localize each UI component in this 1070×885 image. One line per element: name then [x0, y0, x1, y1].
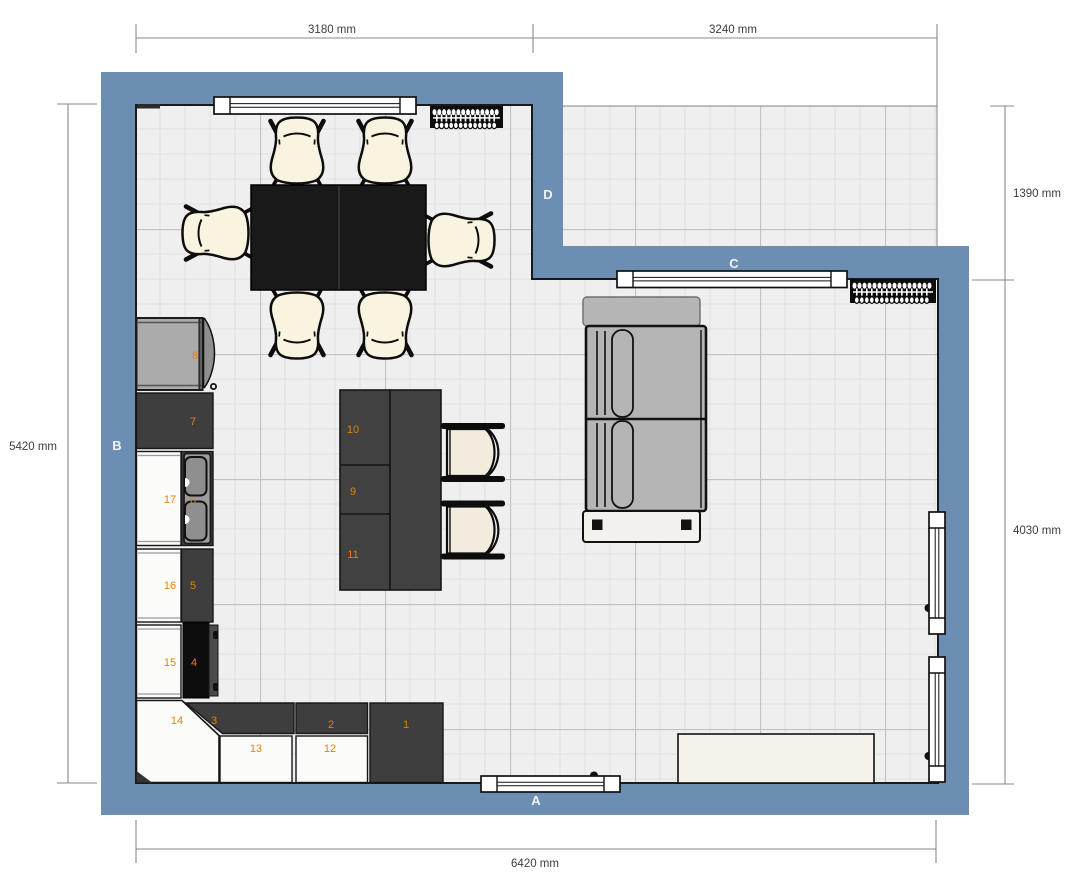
svg-text:11: 11	[347, 549, 358, 561]
svg-text:3180 mm: 3180 mm	[308, 24, 356, 36]
svg-text:7: 7	[190, 416, 196, 428]
svg-text:5: 5	[190, 580, 196, 592]
svg-text:15: 15	[164, 657, 176, 669]
svg-text:16: 16	[164, 580, 176, 592]
svg-text:3: 3	[211, 715, 217, 727]
svg-text:17: 17	[164, 494, 176, 506]
svg-text:5420 mm: 5420 mm	[9, 441, 57, 453]
svg-text:14: 14	[171, 715, 183, 727]
svg-text:4: 4	[191, 657, 197, 669]
svg-text:3240 mm: 3240 mm	[709, 24, 757, 36]
svg-text:1390 mm: 1390 mm	[1013, 188, 1061, 200]
svg-text:6420 mm: 6420 mm	[511, 858, 559, 870]
svg-text:10: 10	[347, 424, 359, 436]
svg-text:6: 6	[190, 495, 196, 507]
svg-text:C: C	[729, 256, 739, 271]
svg-text:8: 8	[192, 350, 198, 362]
svg-text:12: 12	[324, 743, 336, 755]
svg-text:9: 9	[350, 486, 356, 498]
svg-text:13: 13	[250, 743, 262, 755]
svg-text:4030 mm: 4030 mm	[1013, 525, 1061, 537]
svg-text:B: B	[112, 438, 121, 453]
svg-text:2: 2	[328, 719, 334, 731]
svg-text:D: D	[543, 187, 552, 202]
svg-text:1: 1	[403, 719, 409, 731]
svg-text:A: A	[531, 793, 541, 808]
